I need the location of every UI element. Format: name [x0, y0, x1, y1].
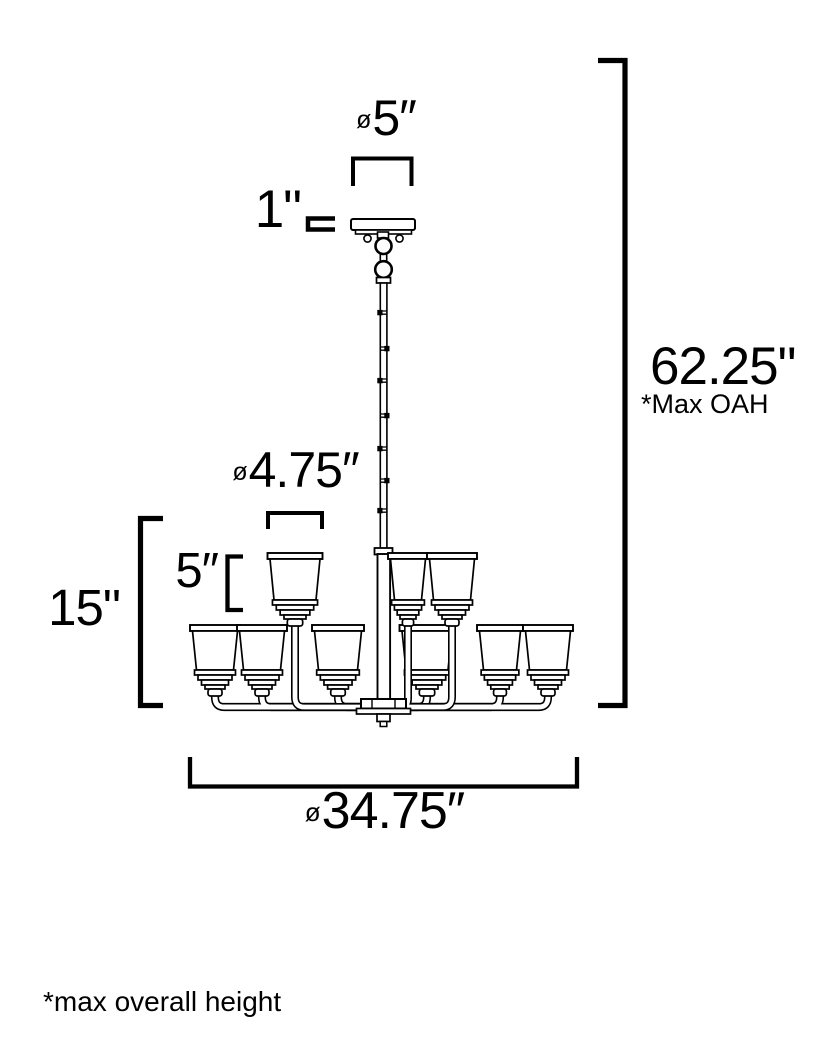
- diameter-symbol: ø: [305, 797, 321, 827]
- shade-cup: [193, 631, 238, 670]
- shade-height-bracket: [228, 557, 244, 611]
- footnote: *max overall height: [43, 988, 281, 1017]
- footnote-text: *max overall height: [43, 986, 281, 1017]
- shade-diameter-value: 4.75″: [249, 442, 359, 498]
- shade-knob: [494, 689, 507, 696]
- shade-knob: [331, 689, 346, 696]
- shade-knob: [541, 689, 555, 696]
- shade-rim: [312, 625, 364, 631]
- canopy-height-label: 1": [219, 183, 301, 237]
- center-hub: [357, 699, 411, 727]
- upper-tier-shades: [268, 553, 478, 626]
- overall-height-note-text: *Max OAH: [641, 389, 769, 419]
- chain-ring: [376, 238, 392, 254]
- canopy-diameter-label: ø5″: [306, 93, 466, 144]
- shade-rim: [477, 625, 523, 631]
- hub-finial: [377, 714, 390, 722]
- shade-cup: [315, 631, 362, 670]
- lower-shade: [523, 625, 573, 696]
- shade-rim: [427, 553, 477, 559]
- shade-cup: [240, 631, 285, 670]
- rod-collar: [377, 278, 391, 284]
- shade-knob: [287, 619, 302, 626]
- shade-cup: [480, 631, 521, 670]
- shade-rim: [523, 625, 573, 631]
- lower-shade: [190, 625, 240, 696]
- shade-knob: [419, 689, 434, 696]
- shade-diameter-label: ø4.75″: [213, 445, 378, 496]
- upper-shade: [268, 553, 323, 626]
- shade-rim: [388, 553, 428, 559]
- canopy-diameter-bracket: [353, 159, 412, 187]
- shade-rim: [190, 625, 240, 631]
- overall-height-label: 62.25": [650, 340, 795, 394]
- shade-cup: [270, 559, 320, 600]
- canopy-height-value: 1": [255, 180, 301, 239]
- shade-rim: [268, 553, 323, 559]
- overall-height-bracket: [598, 61, 625, 706]
- diameter-symbol: ø: [232, 458, 247, 486]
- canopy-height-bracket: [308, 219, 335, 230]
- overall-height-note: *Max OAH: [641, 391, 769, 419]
- upper-shade: [427, 553, 477, 626]
- canopy-diameter-value: 5″: [372, 90, 416, 146]
- shade-cup: [526, 631, 571, 670]
- shade-cup: [430, 559, 475, 600]
- ceiling-canopy: [351, 219, 415, 230]
- fixture-height-label: 15": [26, 582, 120, 634]
- canopy-screw: [396, 235, 403, 242]
- canopy-screw: [364, 235, 371, 242]
- chandelier-drawing: [0, 0, 834, 1042]
- shade-diameter-bracket: [268, 513, 322, 529]
- shade-rim: [237, 625, 287, 631]
- shade-knob: [208, 689, 222, 696]
- dimension-diagram-page: ø5″ 1" 62.25" *Max OAH ø4.75″ 5″ 15" ø34…: [0, 0, 834, 1042]
- fixture-height-value: 15": [48, 579, 120, 636]
- shade-height-value: 5″: [175, 544, 218, 598]
- chain-ring: [375, 261, 392, 278]
- shade-knob: [402, 619, 413, 626]
- hub-finial-tip: [380, 722, 387, 727]
- lower-shade: [477, 625, 523, 696]
- diameter-symbol: ø: [356, 106, 371, 134]
- fixture-diameter-value: 34.75″: [322, 782, 465, 840]
- lower-shade: [237, 625, 287, 696]
- lower-shade: [312, 625, 364, 696]
- hub-plate: [361, 699, 406, 709]
- shade-knob: [445, 619, 459, 626]
- fixture-diameter-label: ø34.75″: [282, 785, 487, 838]
- center-column: [378, 554, 391, 701]
- overall-height-value: 62.25": [650, 337, 795, 396]
- upper-shade: [388, 553, 428, 626]
- shade-knob: [255, 689, 269, 696]
- shade-cup: [391, 559, 426, 600]
- shade-height-label: 5″: [146, 547, 218, 597]
